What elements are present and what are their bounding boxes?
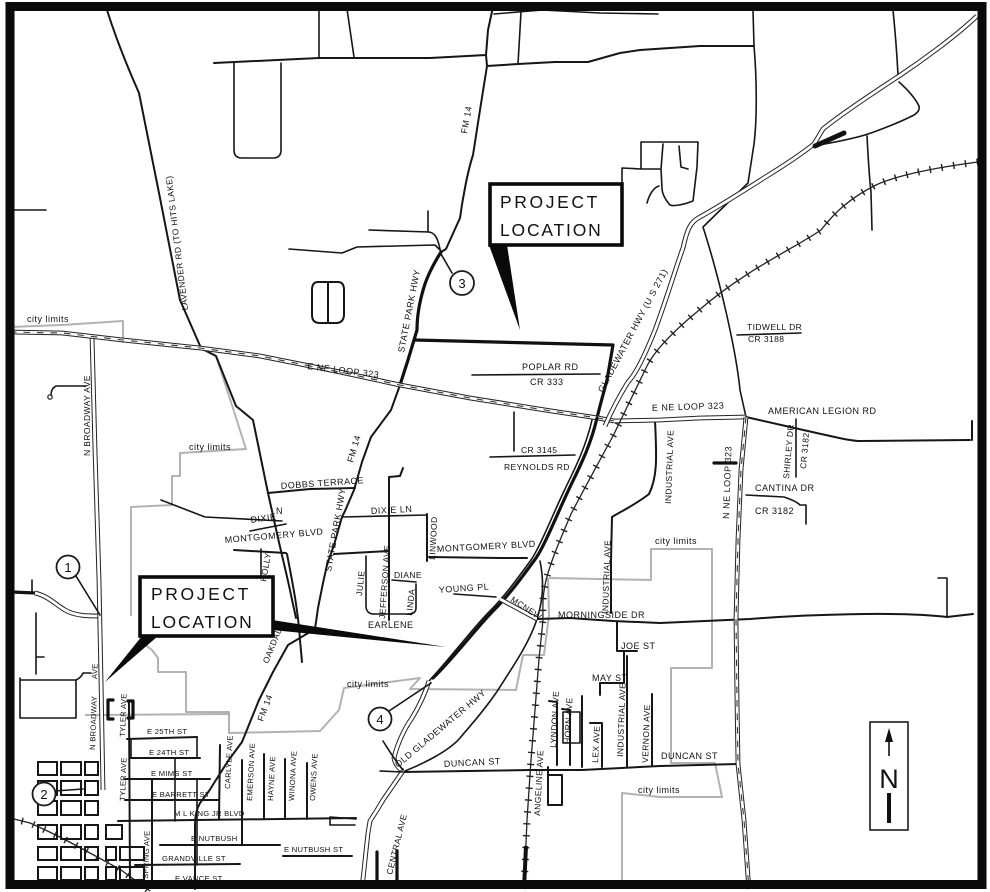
svg-text:N: N [879, 764, 899, 794]
svg-text:POPLAR RD: POPLAR RD [522, 362, 579, 372]
svg-text:4: 4 [376, 712, 383, 727]
svg-text:CR 333: CR 333 [530, 377, 564, 387]
svg-text:E NUTBUSH: E NUTBUSH [191, 834, 238, 843]
svg-text:city limits: city limits [347, 679, 389, 689]
svg-text:AVE: AVE [90, 663, 100, 679]
svg-text:1: 1 [64, 560, 71, 575]
svg-text:city limits: city limits [655, 536, 697, 546]
svg-text:M L KING JR BLVD: M L KING JR BLVD [174, 809, 245, 818]
svg-text:CR 3188: CR 3188 [748, 334, 784, 344]
svg-text:E NUTBUSH ST: E NUTBUSH ST [284, 845, 343, 854]
svg-text:3: 3 [458, 276, 465, 291]
svg-text:EARLENE: EARLENE [368, 620, 414, 630]
svg-text:CR 3145: CR 3145 [521, 445, 557, 455]
svg-text:CANTINA DR: CANTINA DR [755, 483, 815, 493]
svg-text:E 24TH ST: E 24TH ST [149, 748, 189, 757]
svg-text:2: 2 [40, 787, 47, 802]
svg-text:SPRING AVE: SPRING AVE [141, 830, 152, 879]
svg-text:city limits: city limits [638, 785, 680, 795]
svg-text:TYLER AVE: TYLER AVE [118, 693, 129, 737]
svg-text:PROJECT: PROJECT [151, 584, 251, 604]
svg-text:TIDWELL DR: TIDWELL DR [747, 322, 802, 332]
svg-text:DUNCAN ST: DUNCAN ST [661, 751, 718, 761]
svg-text:MAY ST: MAY ST [592, 673, 628, 683]
svg-text:CR 3182: CR 3182 [755, 506, 794, 516]
svg-text:city limits: city limits [189, 442, 231, 452]
svg-text:PROJECT: PROJECT [500, 192, 600, 212]
svg-text:E MIMS ST: E MIMS ST [151, 769, 193, 778]
svg-text:E BARRETT ST: E BARRETT ST [152, 790, 210, 799]
svg-text:TYLER AVE: TYLER AVE [118, 757, 129, 801]
svg-text:GRANDVILLE ST: GRANDVILLE ST [162, 854, 226, 863]
svg-text:AMERICAN LEGION RD: AMERICAN LEGION RD [768, 406, 877, 416]
svg-text:LOCATION: LOCATION [151, 612, 254, 632]
svg-text:city limits: city limits [27, 314, 69, 324]
svg-text:N BROADWAY AVE: N BROADWAY AVE [82, 375, 92, 456]
svg-text:REYNOLDS RD: REYNOLDS RD [504, 462, 570, 472]
svg-text:LEX AVE: LEX AVE [590, 725, 602, 763]
svg-text:LOCATION: LOCATION [500, 220, 603, 240]
svg-text:JOE ST: JOE ST [621, 641, 656, 651]
svg-text:DIANE: DIANE [394, 570, 422, 580]
svg-text:VERNON AVE: VERNON AVE [640, 704, 652, 763]
svg-text:N BROADWAY: N BROADWAY [88, 696, 99, 750]
svg-text:N: N [276, 506, 283, 516]
svg-text:E 25TH ST: E 25TH ST [147, 727, 187, 736]
